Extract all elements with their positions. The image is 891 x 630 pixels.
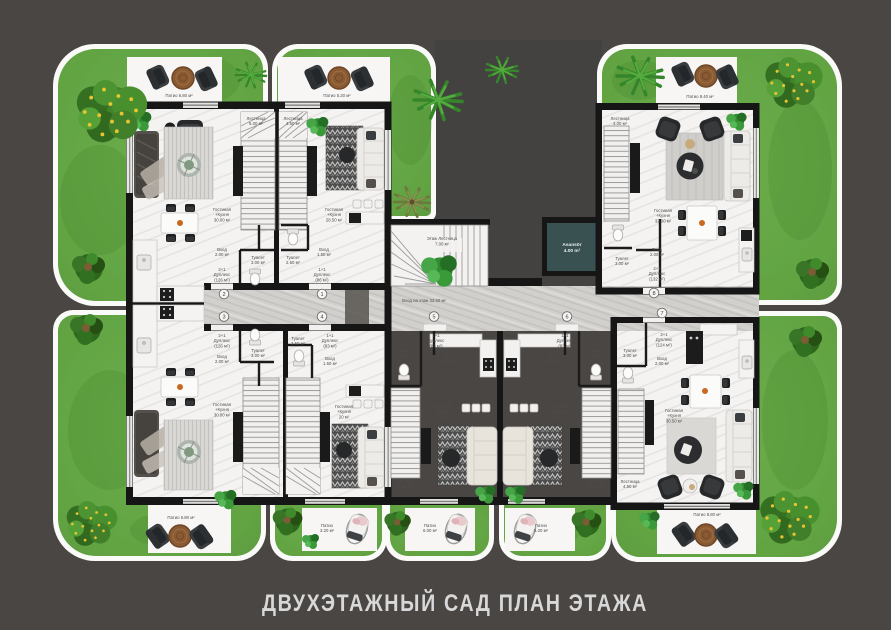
svg-text:Патио3.20 м²: Патио3.20 м²	[320, 523, 335, 533]
svg-text:Туалет3.50 м²: Туалет3.50 м²	[291, 336, 306, 346]
svg-text:Гостиная+Кухня30.50 м²: Гостиная+Кухня30.50 м²	[665, 408, 684, 423]
svg-text:3: 3	[222, 315, 225, 321]
svg-text:Туалет3.00 м²: Туалет3.00 м²	[251, 348, 266, 358]
svg-text:Гостиная+Кухня30.00 м²: Гостиная+Кухня30.00 м²	[213, 402, 232, 417]
svg-text:Туалет2.50 м²: Туалет2.50 м²	[286, 255, 301, 265]
svg-text:Туалет3.00 м²: Туалет3.00 м²	[623, 348, 638, 358]
svg-text:Вход на этаж 33.50 м²: Вход на этаж 33.50 м²	[402, 298, 446, 303]
svg-text:Туалет2.50 м²: Туалет2.50 м²	[589, 348, 604, 358]
svg-text:Патио 6.80 м²: Патио 6.80 м²	[165, 93, 193, 98]
svg-text:Патио5.20 м²: Патио5.20 м²	[534, 523, 549, 533]
svg-text:1: 1	[320, 292, 323, 298]
svg-text:6: 6	[565, 315, 568, 321]
svg-text:Патио 6.80 м²: Патио 6.80 м²	[167, 515, 195, 520]
svg-text:5: 5	[432, 315, 435, 321]
svg-text:ДВУХЭТАЖНЫЙ САД ПЛАН ЭТАЖА: ДВУХЭТАЖНЫЙ САД ПЛАН ЭТАЖА	[262, 589, 648, 617]
svg-text:Патио 8.80 м²: Патио 8.80 м²	[693, 512, 721, 517]
svg-text:Туалет3.00 м²: Туалет3.00 м²	[251, 255, 266, 265]
svg-text:Гостиная+Кухня28.50 м²: Гостиная+Кухня28.50 м²	[325, 207, 344, 222]
svg-text:4: 4	[320, 315, 323, 321]
svg-text:Туалет2.50 м²: Туалет2.50 м²	[397, 348, 412, 358]
svg-text:Гостиная+Кухня32.00 м²: Гостиная+Кухня32.00 м²	[654, 208, 673, 223]
svg-text:Туалет3.00 м²: Туалет3.00 м²	[615, 256, 630, 266]
svg-text:Патио 5.20 м²: Патио 5.20 м²	[323, 93, 351, 98]
svg-text:Патио 8.40 м²: Патио 8.40 м²	[686, 94, 714, 99]
svg-text:7: 7	[660, 311, 663, 317]
svg-text:Патио6.00 м²: Патио6.00 м²	[423, 523, 438, 533]
svg-text:Гостиная+Кухня30.00 м²: Гостиная+Кухня30.00 м²	[213, 207, 232, 222]
svg-text:2: 2	[222, 292, 225, 298]
svg-text:8: 8	[652, 291, 655, 297]
